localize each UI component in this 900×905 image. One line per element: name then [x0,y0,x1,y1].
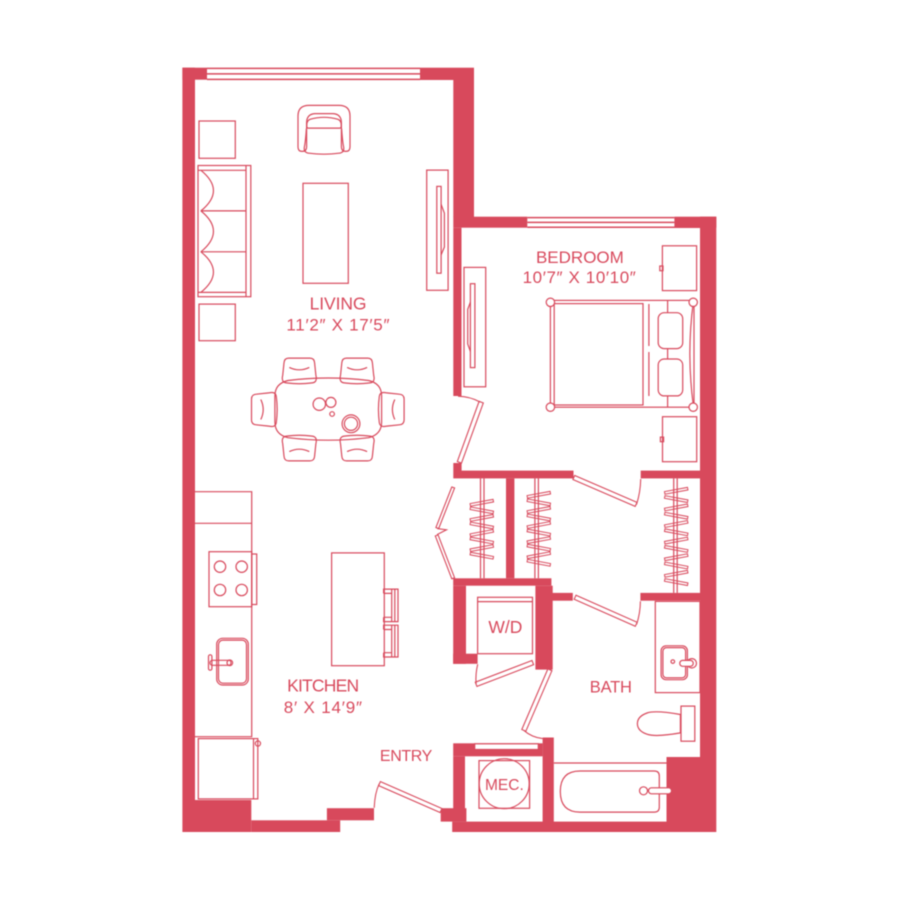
svg-text:LIVING: LIVING [310,294,367,314]
svg-text:BATH: BATH [590,678,632,696]
svg-text:KITCHEN: KITCHEN [287,675,358,695]
svg-text:8′ X 14′9″: 8′ X 14′9″ [284,698,363,717]
svg-text:MEC.: MEC. [485,777,524,794]
svg-text:ENTRY: ENTRY [380,748,433,765]
svg-text:10′7″ X 10′10″: 10′7″ X 10′10″ [523,268,637,287]
svg-text:W/D: W/D [488,617,522,637]
svg-text:BEDROOM: BEDROOM [536,248,624,267]
svg-text:11′2″ X 17′5″: 11′2″ X 17′5″ [286,316,390,335]
